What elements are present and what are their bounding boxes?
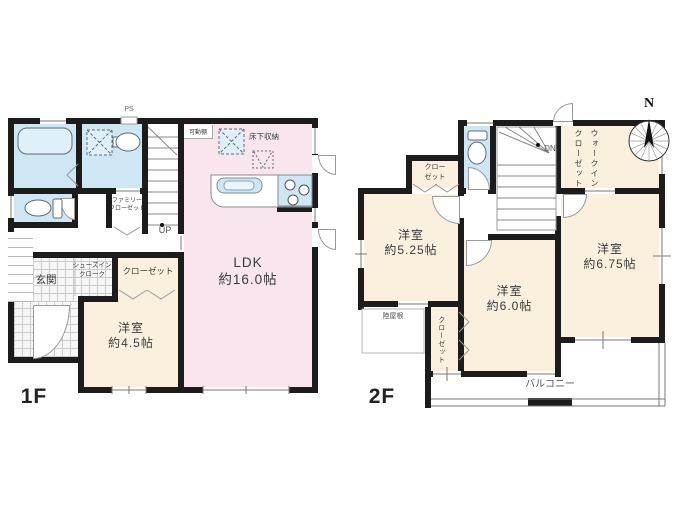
f1-window-kitchen-right <box>312 128 318 154</box>
room-name: 洋室 <box>84 321 178 336</box>
f2-wall-topleft <box>358 188 412 194</box>
f2-window-675-bottom <box>575 337 631 343</box>
f2-window-525-bottom <box>398 301 428 307</box>
f1-closet-room <box>118 258 178 296</box>
f1-window-toilet-left <box>8 196 14 218</box>
f1-window-bath-top <box>40 118 66 124</box>
closet-lower-label: クローゼット <box>436 310 445 370</box>
dn-label: DN <box>536 144 564 154</box>
f1-wall-bath-wash <box>76 124 82 188</box>
stairs-1f-icon <box>148 127 178 227</box>
f2-window-b60-bottom <box>433 371 461 377</box>
f1-wall-hall-entrance <box>25 252 178 258</box>
room-name: 洋室 <box>464 284 555 299</box>
f1-wall-stairs-left <box>142 124 148 234</box>
room-label-bedroom675: 洋室 約6.75帖 <box>561 242 659 272</box>
f1-wall-kitchen-bar <box>277 206 312 212</box>
f1-window-bedroom-bottom <box>112 387 146 393</box>
f2-wall-toilet-right <box>490 120 496 194</box>
f2-door-gap-675 <box>555 194 561 216</box>
room-size: 約5.25帖 <box>364 243 458 258</box>
balcony-label: バルコニー <box>505 379 595 392</box>
movable-shelf-label: 可動棚 <box>184 125 213 139</box>
room-size: 約6.0帖 <box>464 299 555 314</box>
room-size: 約16.0帖 <box>190 272 306 289</box>
f1-wall-shoes-bottom <box>78 296 118 302</box>
room-label-bedroom60: 洋室 約6.0帖 <box>464 284 555 314</box>
f1-opening-washroom <box>116 188 140 194</box>
f1-opening-ldk-hall <box>178 234 184 252</box>
f1-opening-right-2 <box>312 208 318 222</box>
stairs-2f-icon <box>497 127 556 230</box>
walk-in-closet-label: ウォークイン クローゼット <box>570 127 602 191</box>
room-size: 約4.5帖 <box>84 336 178 351</box>
f2-wall-balcony-left <box>425 377 431 408</box>
floor-1f-label: 1F <box>12 384 56 410</box>
f2-balcony-door-gap <box>527 371 555 377</box>
floor-2f-label: 2F <box>360 384 404 410</box>
flat-roof-label: 陸屋根 <box>364 313 422 322</box>
f1-side-door-arc-2 <box>318 229 336 250</box>
underfloor-storage-label: 床下収納 <box>240 132 288 141</box>
f2-wall-closet-top <box>406 155 460 161</box>
shoes-in-closet-label: シューズイン クローク <box>72 261 112 279</box>
f1-window-ldk-bottom <box>203 387 289 393</box>
closet-1f-label: クローゼット <box>116 266 180 277</box>
f1-wall-toilet-bottom <box>8 222 78 228</box>
f1-porch-steps <box>8 232 33 302</box>
f1-door-gap-right-1 <box>312 155 318 173</box>
f1-bathroom <box>14 124 76 188</box>
closet-upper-label: クロー ゼット <box>412 163 458 183</box>
f2-window-675-right <box>659 228 665 284</box>
floorplan-canvas: 1F 2F PS 可動棚 床下収納 LDK 約16.0帖 洋室 約4.5帖 ファ… <box>0 0 680 520</box>
f1-wall-entrance-right <box>112 252 118 302</box>
f2-wall-balcony-seg <box>528 398 572 406</box>
family-closet-label: ファミリー クローゼット <box>109 197 145 213</box>
entrance-label: 玄関 <box>26 274 66 287</box>
f2-window-toilet-top <box>467 120 493 126</box>
ps-label: PS <box>112 106 146 115</box>
f1-washroom <box>82 124 142 188</box>
f1-wall-ldk-divider <box>178 124 184 387</box>
f2-window-wic-right <box>659 140 665 174</box>
room-label-bedroom525: 洋室 約5.25帖 <box>364 228 458 258</box>
room-label-ldk: LDK 約16.0帖 <box>190 255 306 289</box>
movable-shelf-text: 可動棚 <box>189 127 207 136</box>
f2-door-arc-stairtop <box>553 103 573 122</box>
room-name: LDK <box>190 255 306 272</box>
f1-side-door-arc-1 <box>318 155 336 175</box>
up-label: UP <box>150 225 180 236</box>
compass-north-label: N <box>640 95 658 113</box>
room-size: 約6.75帖 <box>561 257 659 272</box>
room-name: 洋室 <box>561 242 659 257</box>
room-name: 洋室 <box>364 228 458 243</box>
f1-wall-porch-bottom <box>8 357 84 363</box>
f2-wall-closet2-left <box>425 307 431 377</box>
room-label-bedroom45: 洋室 約4.5帖 <box>84 321 178 351</box>
